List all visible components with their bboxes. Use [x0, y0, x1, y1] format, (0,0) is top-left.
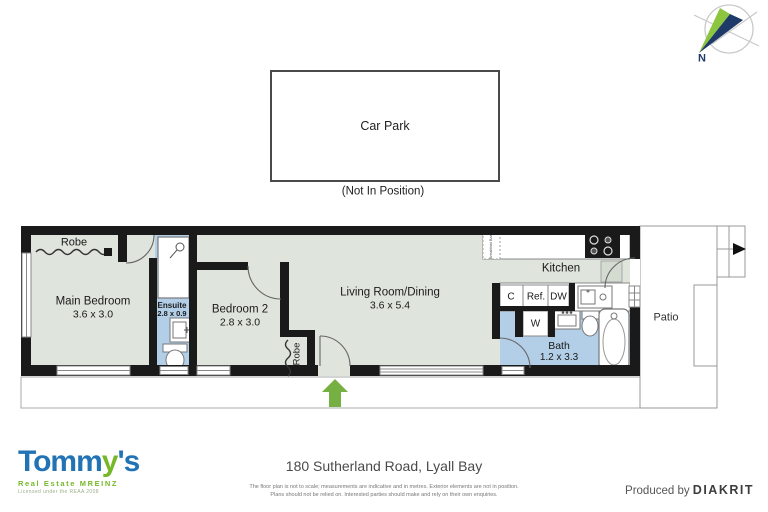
robe-bedroom2-label: Robe — [293, 343, 304, 366]
tommys-logo: Tommy's Real Estate MREINZ Licensed unde… — [18, 447, 139, 495]
main-bedroom-name: Main Bedroom — [56, 295, 131, 308]
patio-label: Patio — [653, 312, 678, 325]
kitchen-counter — [483, 233, 630, 259]
shower-icon — [158, 237, 189, 298]
disclaimer-line1: The floor plan is not to scale; measurem… — [249, 484, 518, 490]
disclaimer-line2: Plans should not be relied on. Intereste… — [270, 492, 497, 498]
floorplan-page: Car Park (Not In Position) N Robe Main B… — [0, 0, 768, 512]
compass-icon — [694, 5, 759, 53]
kitchen-sink-icon — [578, 286, 612, 308]
living-dims: 3.6 x 5.4 — [340, 300, 440, 312]
compass-north-label: N — [698, 53, 706, 66]
ensuite-sink-icon — [170, 318, 190, 342]
bath-name: Bath — [540, 340, 578, 352]
bedroom2-label: Bedroom 2 2.8 x 3.0 — [212, 303, 268, 328]
brand-subtitle: Real Estate MREINZ — [18, 480, 139, 488]
fridge-label: Ref. — [527, 291, 545, 303]
ensuite-label: Ensuite 2.8 x 0.9 — [157, 302, 186, 318]
robe-main-label: Robe — [61, 237, 87, 250]
main-bedroom-dims: 3.6 x 3.0 — [56, 309, 131, 321]
breakfast-bar-label: Breakfast Bar — [489, 235, 493, 259]
bath-dims: 1.2 x 3.3 — [540, 352, 578, 364]
washer-label: W — [531, 318, 540, 330]
living-name: Living Room/Dining — [340, 286, 440, 299]
main-bedroom-label: Main Bedroom 3.6 x 3.0 — [56, 295, 131, 320]
kitchen-label: Kitchen — [542, 262, 580, 275]
kitchen-door-leaf — [601, 261, 622, 282]
kitchen-door-opening — [630, 259, 640, 287]
bath-label: Bath 1.2 x 3.3 — [540, 340, 578, 364]
producer-credit: Produced by DIAKRIT — [625, 483, 754, 497]
bathtub-icon — [599, 309, 629, 369]
car-park-box: Car Park — [270, 70, 500, 182]
property-address: 180 Sutherland Road, Lyall Bay — [286, 458, 482, 474]
brand-text-green: y — [102, 445, 118, 478]
window-living — [380, 366, 483, 375]
producer-name: DIAKRIT — [693, 483, 754, 497]
bedroom2-name: Bedroom 2 — [212, 303, 268, 316]
brand-license: Licensed under the REAA 2008 — [18, 490, 139, 495]
dishwasher-label: DW — [550, 291, 567, 303]
living-label: Living Room/Dining 3.6 x 5.4 — [340, 286, 440, 311]
patio-planter — [694, 285, 717, 366]
ensuite-dims: 2.8 x 0.9 — [157, 310, 186, 318]
brand-text-blue2: 's — [117, 445, 139, 478]
entry-door-opening — [318, 365, 350, 376]
cupboard-label: C — [507, 291, 514, 303]
produced-by-text: Produced by — [625, 485, 693, 497]
bedroom2-dims: 2.8 x 3.0 — [212, 317, 268, 329]
entry-steps — [717, 226, 746, 277]
car-park-label: Car Park — [360, 119, 409, 133]
not-in-position-label: (Not In Position) — [342, 185, 424, 198]
brand-text-blue1: Tomm — [18, 445, 102, 478]
bath-sink-icon — [554, 311, 580, 329]
stove-icon — [585, 233, 620, 258]
toilet-icon — [582, 311, 599, 336]
